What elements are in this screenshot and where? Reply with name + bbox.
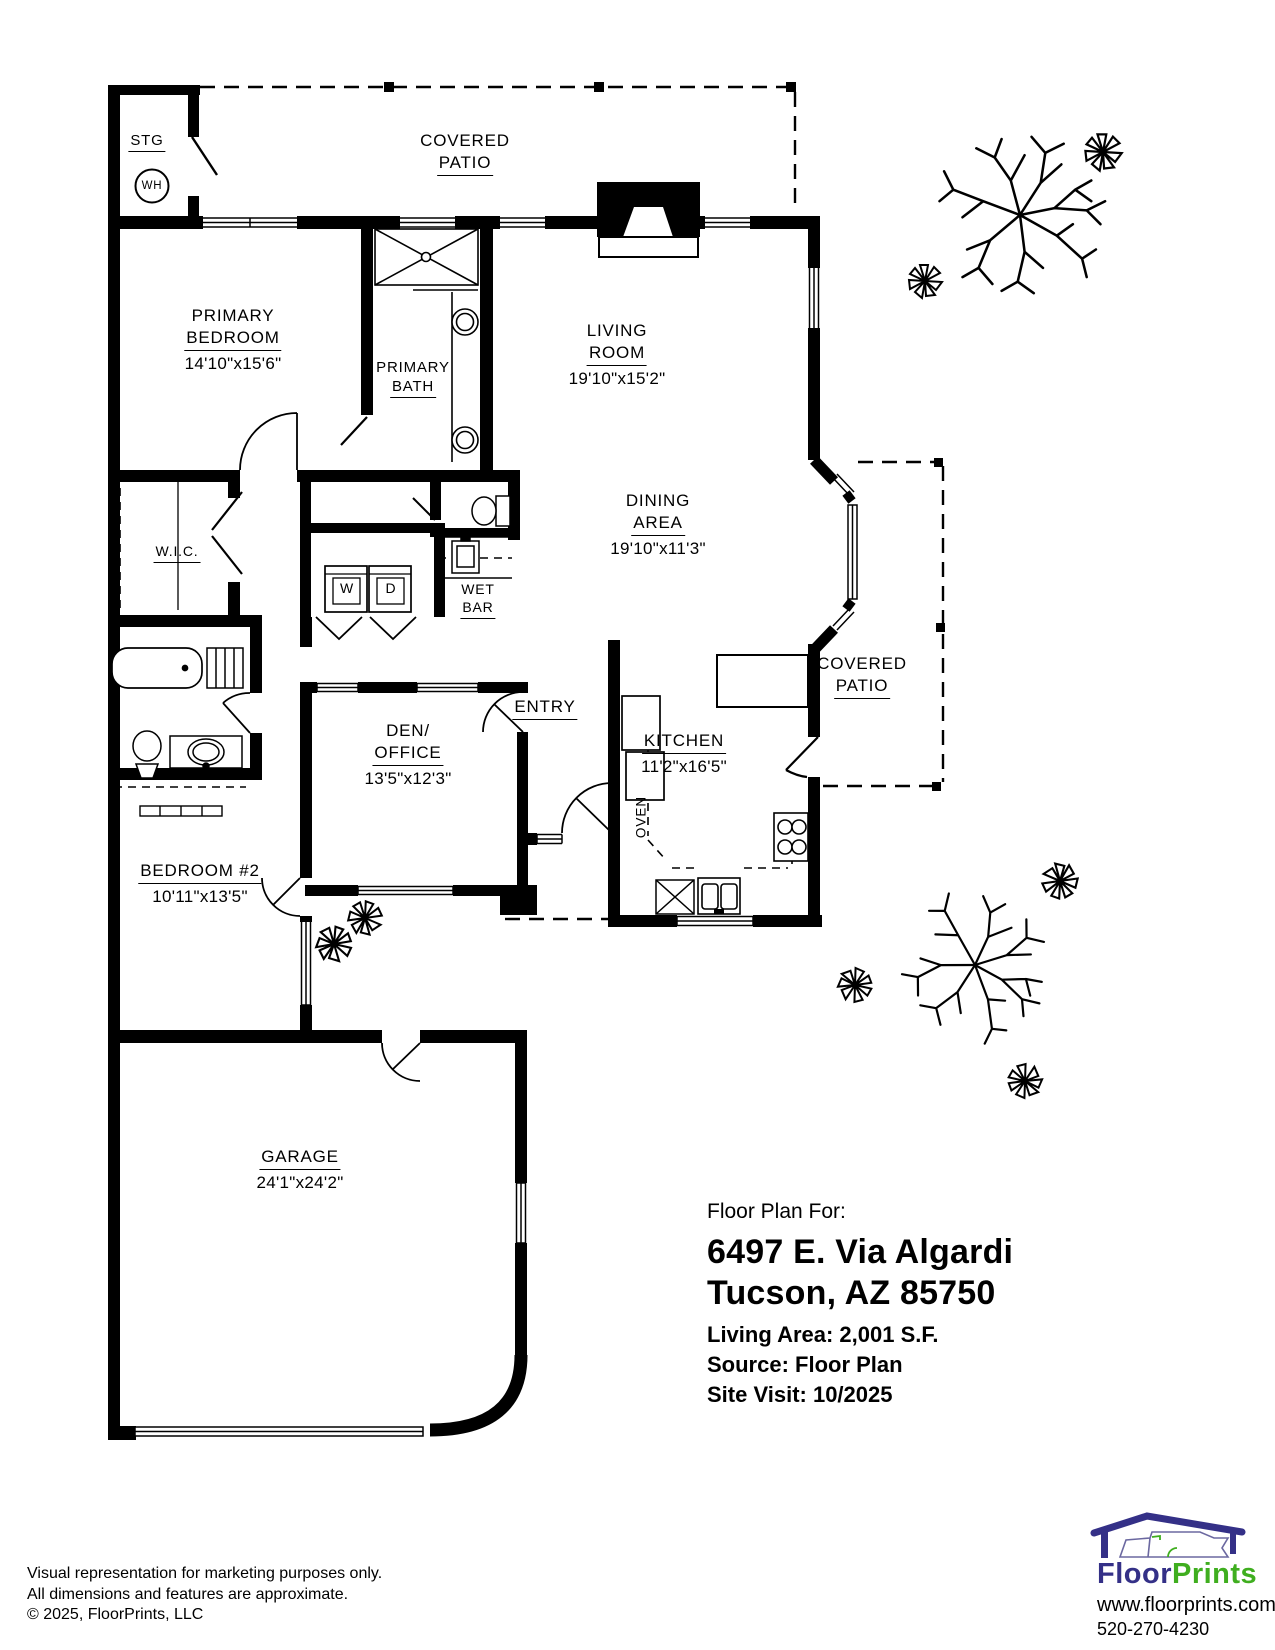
linen-closet [207, 648, 243, 688]
bush-icon [344, 897, 386, 939]
window-primary-bath [400, 218, 455, 227]
room-label-wic: W.I.C. [154, 543, 201, 563]
water-heater-label: WH [142, 179, 163, 194]
room-label-covered-patio-top: COVERED PATIO [420, 130, 510, 176]
oven-label: OVEN [632, 796, 649, 838]
bush-icon [1037, 858, 1081, 902]
fireplace [597, 182, 700, 257]
bush-icon [1085, 134, 1121, 170]
bay-window-stubs [846, 493, 852, 609]
window-living-1 [500, 218, 545, 227]
disclaimer-line1: Visual representation for marketing purp… [27, 1564, 382, 1585]
room-label-kitchen: KITCHEN 11'2"x16'5" [641, 730, 727, 778]
disclaimer-line2: All dimensions and features are approxim… [27, 1585, 382, 1606]
bath2-door [223, 693, 250, 733]
bedroom2-bifold-closet [140, 806, 222, 816]
tree-icon [878, 868, 1076, 1065]
bay-window-center [848, 505, 857, 599]
bedroom2-door [262, 878, 300, 916]
garage-curved-wall [430, 1355, 521, 1430]
stg-door [192, 137, 217, 175]
primary-vanity [452, 292, 478, 462]
front-door [562, 783, 612, 833]
window-kitchen [677, 917, 753, 926]
buffet-counter [717, 655, 808, 707]
tree-icon [940, 137, 1106, 293]
window-den-1 [317, 684, 358, 692]
address-line2: Tucson, AZ 85750 [707, 1273, 1013, 1314]
room-label-covered-patio-right: COVERED PATIO [817, 653, 907, 699]
room-label-stg: STG [128, 131, 165, 152]
washer-dryer-boxes [325, 566, 411, 612]
window-bedroom2-east [302, 920, 311, 1005]
wic-door [212, 492, 242, 574]
living-area: Living Area: 2,001 S.F. [707, 1320, 1013, 1350]
window-living-2 [705, 218, 750, 227]
room-label-primary-bedroom: PRIMARY BEDROOM 14'10"x15'6" [184, 305, 281, 374]
floor-plan-page: STG WH COVERED PATIO PRIMARY BEDROOM 14'… [0, 0, 1275, 1650]
bathtub [112, 648, 202, 688]
window-garage-east [517, 1183, 526, 1243]
corner-cabinet [656, 880, 694, 914]
bush-icon [832, 963, 877, 1008]
washer-label: W [340, 580, 354, 598]
site-visit: Site Visit: 10/2025 [707, 1380, 1013, 1410]
floorprints-logo: FloorPrints www.floorprints.com 520-270-… [1097, 1560, 1275, 1638]
room-label-wet-bar: WET BAR [460, 581, 495, 619]
disclaimer: Visual representation for marketing purp… [27, 1564, 382, 1626]
room-label-living-room: LIVING ROOM 19'10"x15'2" [569, 320, 666, 389]
primary-bath-door [341, 417, 367, 445]
logo-website: www.floorprints.com [1097, 1595, 1275, 1615]
patio-door [786, 737, 818, 777]
wet-bar-sink [438, 535, 512, 578]
room-label-den-office: DEN/ OFFICE 13'5"x12'3" [364, 720, 451, 789]
garage-service-door [382, 1043, 420, 1081]
window-living-east [809, 268, 819, 328]
toilet-powder [472, 496, 510, 526]
kitchen-sink [698, 878, 740, 914]
bay-window-walls [814, 460, 834, 650]
window-den-south [358, 887, 453, 895]
room-label-primary-bath: PRIMARY BATH [376, 358, 450, 398]
bush-icon [909, 265, 942, 298]
source: Source: Floor Plan [707, 1350, 1013, 1380]
room-label-garage: GARAGE 24'1"x24'2" [256, 1146, 343, 1194]
primary-bedroom-door [240, 413, 297, 470]
room-label-entry: ENTRY [512, 696, 577, 720]
window-top-bedroom [203, 218, 297, 227]
dryer-label: D [386, 580, 397, 598]
laundry-bifold-doors [316, 617, 416, 639]
property-info-block: Floor Plan For: 6497 E. Via Algardi Tucs… [707, 1200, 1013, 1410]
logo-house-icon [1094, 1516, 1242, 1558]
bush-icon [311, 922, 355, 966]
room-label-bedroom2: BEDROOM #2 10'11"x13'5" [138, 860, 261, 908]
stove [774, 813, 808, 861]
window-den-2 [417, 684, 478, 692]
info-heading: Floor Plan For: [707, 1200, 1013, 1224]
doors [192, 137, 818, 1081]
shower [375, 229, 478, 290]
logo-phone: 520-270-4230 [1097, 1620, 1275, 1638]
garage-door [135, 1427, 423, 1436]
brand-name: FloorPrints [1097, 1560, 1275, 1589]
room-label-dining-area: DINING AREA 19'10"x11'3" [610, 490, 706, 559]
window-entry-sidelight [537, 835, 562, 844]
bush-icon [1003, 1058, 1048, 1103]
bay-window-lower [833, 608, 854, 630]
copyright: © 2025, FloorPrints, LLC [27, 1605, 382, 1626]
vanity-bath2 [170, 736, 242, 769]
address-line1: 6497 E. Via Algardi [707, 1232, 1013, 1273]
